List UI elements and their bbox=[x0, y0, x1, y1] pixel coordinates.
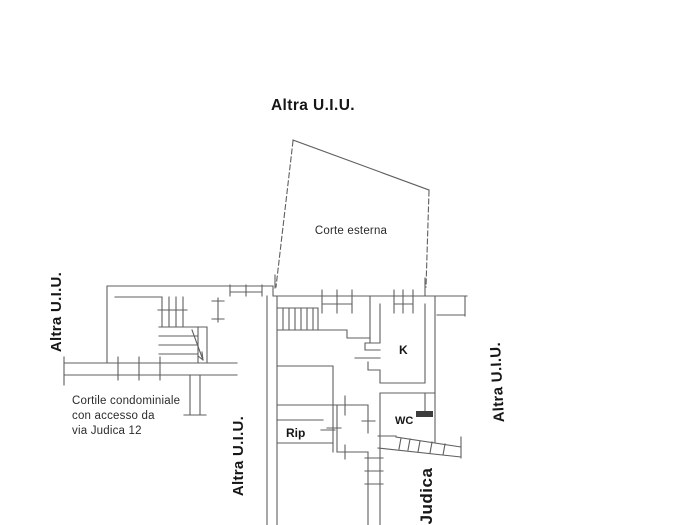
label-altra-uiu-top: Altra U.I.U. bbox=[271, 97, 355, 114]
court-top-edge bbox=[293, 140, 429, 190]
corte-esterna-boundary bbox=[276, 140, 429, 287]
court-left-dashed-edge bbox=[276, 141, 293, 287]
cortile-note-line2: con accesso da bbox=[72, 410, 155, 422]
label-room-k: K bbox=[399, 343, 408, 357]
secondary-staircase bbox=[278, 308, 370, 338]
gate-jamb bbox=[184, 375, 206, 415]
kitchen-walls bbox=[355, 296, 425, 383]
wc-door-bar bbox=[416, 411, 433, 417]
cortile-note-line1: Cortile condominiale bbox=[72, 395, 180, 407]
court-right-dashed-edge bbox=[426, 191, 429, 287]
corridor-walls bbox=[267, 296, 277, 525]
label-street-judica: Judica bbox=[417, 468, 436, 525]
floor-plan-svg: Altra U.I.U. Altra U.I.U. Altra U.I.U. A… bbox=[0, 0, 700, 525]
wall-end-ticks bbox=[64, 275, 465, 385]
floor-plan-page: Altra U.I.U. Altra U.I.U. Altra U.I.U. A… bbox=[0, 0, 700, 525]
lower-corridor-walls bbox=[365, 436, 383, 525]
entry-steps bbox=[378, 437, 461, 458]
label-altra-uiu-bottom-left: Altra U.I.U. bbox=[230, 416, 247, 496]
linework bbox=[64, 140, 467, 525]
main-staircase bbox=[115, 297, 224, 363]
label-room-rip: Rip bbox=[286, 426, 305, 440]
cortile-wall bbox=[64, 363, 237, 375]
stair-hall-door-jamb bbox=[212, 298, 224, 322]
window-top-left bbox=[230, 285, 262, 296]
windows-top-wall bbox=[322, 290, 413, 313]
label-corte-esterna: Corte esterna bbox=[315, 225, 388, 237]
cortile-window-ticks bbox=[118, 357, 160, 380]
label-altra-uiu-left: Altra U.I.U. bbox=[48, 272, 65, 352]
label-room-wc: WC bbox=[395, 415, 413, 427]
hall-walls bbox=[277, 366, 375, 459]
cortile-note-line3: via Judica 12 bbox=[72, 425, 142, 437]
stair-treads bbox=[115, 297, 207, 363]
primary-labels: Altra U.I.U. Altra U.I.U. Altra U.I.U. A… bbox=[48, 97, 508, 524]
label-cortile-note: Cortile condominiale con accesso da via … bbox=[72, 395, 180, 437]
label-altra-uiu-right: Altra U.I.U. bbox=[487, 342, 508, 423]
